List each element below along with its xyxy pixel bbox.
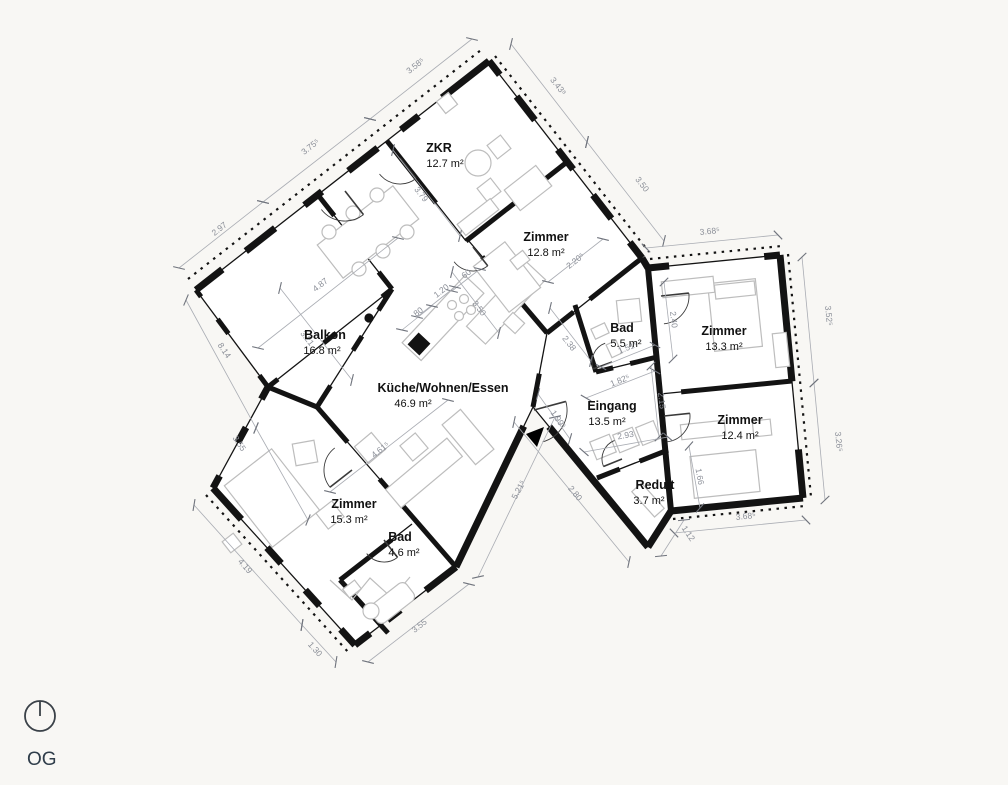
north-indicator-icon xyxy=(25,701,55,731)
room-label: Bad xyxy=(388,530,412,544)
dimension-label: 2.97 xyxy=(210,219,229,237)
dimension-tick xyxy=(466,38,478,41)
furniture-desk xyxy=(772,332,789,367)
furniture-shower xyxy=(616,298,641,323)
room-area-label: 12.7 m² xyxy=(426,158,464,170)
furniture-armchair xyxy=(292,440,317,465)
dimension-tick xyxy=(472,576,484,579)
dimension-label: 2.80 xyxy=(566,484,584,503)
room-label: Zimmer xyxy=(523,230,568,244)
furniture-round-table xyxy=(465,150,491,176)
dimension-tick xyxy=(510,38,513,50)
floor-plan-page: 2.973.75⁵3.58⁵3.43⁸3.503.68⁵3.52⁵3.26⁵3.… xyxy=(0,0,1008,785)
dimension-label: 1.12 xyxy=(680,524,698,544)
dimension-label: 3.50 xyxy=(633,175,651,194)
dimension-tick xyxy=(257,201,269,204)
dimension-tick xyxy=(655,555,667,556)
room-label: Eingang xyxy=(587,399,636,413)
dimension-tick xyxy=(628,556,631,568)
dimension-label: 3.55 xyxy=(410,616,429,634)
room-area-label: 4.6 m² xyxy=(388,547,420,559)
furniture-chair xyxy=(400,225,414,239)
dimension-line xyxy=(802,257,814,383)
room-label: Balkon xyxy=(304,328,346,342)
dimension-label: 3.43⁸ xyxy=(548,75,569,97)
furniture-toilet xyxy=(363,603,379,619)
room-area-label: 16.8 m² xyxy=(303,345,341,357)
furniture-column xyxy=(365,314,373,322)
dimension-line xyxy=(646,235,778,248)
wall-segment xyxy=(798,449,803,498)
dimension-label: 3.68⁵ xyxy=(735,510,756,522)
entrance-arrow-icon xyxy=(526,427,544,447)
room-area-label: 13.5 m² xyxy=(588,416,626,428)
room-label: Zimmer xyxy=(717,413,762,427)
furniture-nightstand xyxy=(222,533,242,553)
dimension-label: 2.15 xyxy=(656,392,668,410)
dimension-tick xyxy=(463,583,475,586)
floor-plan-canvas: 2.973.75⁵3.58⁵3.43⁸3.503.68⁵3.52⁵3.26⁵3.… xyxy=(0,0,1008,785)
room-area-label: 5.5 m² xyxy=(610,338,642,350)
room-label: Bad xyxy=(610,321,634,335)
dimension-label: 3.68⁵ xyxy=(699,225,720,237)
room-area-label: 15.3 m² xyxy=(330,514,368,526)
dimension-tick xyxy=(184,294,189,305)
furniture-chair xyxy=(322,225,336,239)
dimension-tick xyxy=(678,519,690,520)
furniture-chair xyxy=(370,188,384,202)
room-label: Zimmer xyxy=(701,324,746,338)
furniture-burner xyxy=(455,312,464,321)
dimension-tick xyxy=(663,235,666,247)
dimension-label: 4.19 xyxy=(236,556,255,575)
room-label: Zimmer xyxy=(331,497,376,511)
furniture-burner xyxy=(448,301,457,310)
dimension-tick xyxy=(364,118,376,121)
dimension-tick xyxy=(301,619,303,631)
dimension-tick xyxy=(193,499,195,511)
dimension-label: 8.14 xyxy=(216,341,234,361)
dimension-tick xyxy=(362,661,374,664)
dimension-label: 5.21⁵ xyxy=(509,478,527,500)
dimension-tick xyxy=(335,656,337,668)
dimension-tick xyxy=(173,267,185,270)
room-area-label: 12.8 m² xyxy=(527,247,565,259)
room-label: ZKR xyxy=(426,141,452,155)
dimension-label: 1.30 xyxy=(306,639,325,658)
wall-segment xyxy=(648,266,669,268)
room-label: Küche/Wohnen/Essen xyxy=(377,381,508,395)
dimension-label: 3.26⁵ xyxy=(833,431,845,452)
dimension-tick xyxy=(586,136,589,148)
room-area-label: 12.4 m² xyxy=(721,430,759,442)
furniture-burner xyxy=(460,295,469,304)
room-area-label: 13.3 m² xyxy=(705,341,743,353)
dimension-line xyxy=(814,383,825,500)
room-area-label: 46.9 m² xyxy=(394,398,432,410)
dimension-label: 3.58⁵ xyxy=(404,56,426,76)
room-label: Reduit xyxy=(636,478,676,492)
dimension-label: 3.52⁵ xyxy=(823,305,835,326)
room-area-label: 3.7 m² xyxy=(633,495,665,507)
dimension-label: 2.40 xyxy=(668,311,680,329)
dimension-label: 3.75⁵ xyxy=(299,137,321,157)
floor-label: OG xyxy=(27,749,57,770)
